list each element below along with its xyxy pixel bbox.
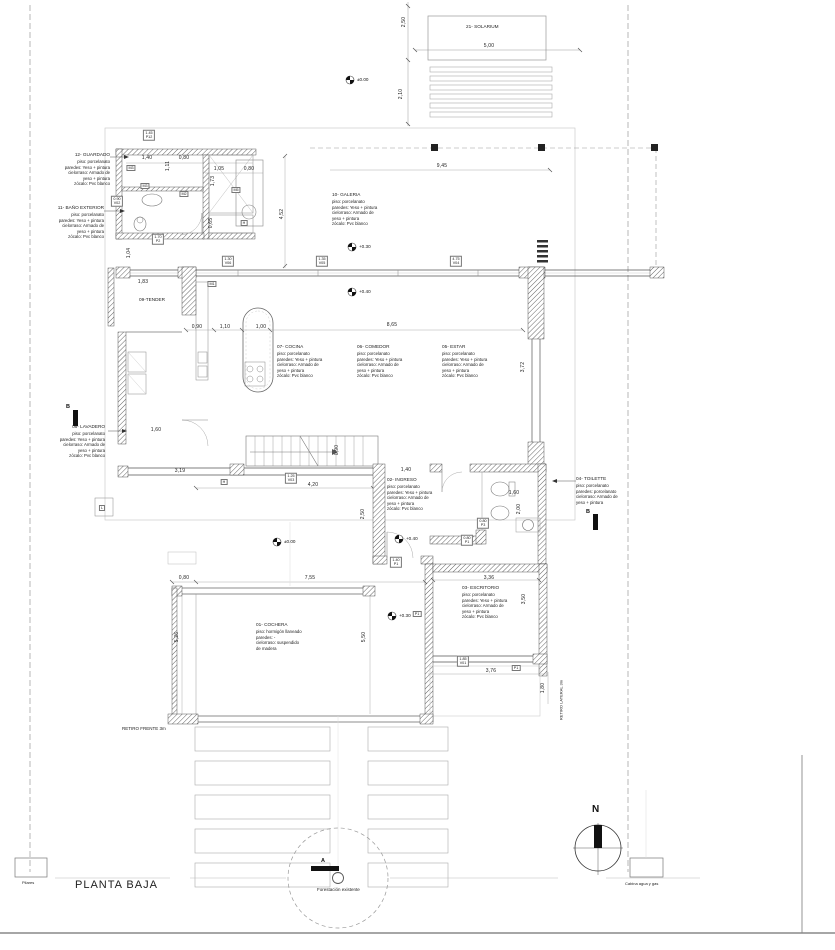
room-specs: piso: porcelanato paredes: Yeso + pintur… — [387, 484, 432, 512]
room-name: 02- INGRESO — [387, 477, 432, 483]
room-name: 12- GUARDADO — [40, 152, 110, 158]
window-door-tag: 1.40P1 — [390, 557, 402, 568]
room-name: 08- LAVADERO — [33, 424, 105, 430]
room-name: 01- COCHERA — [256, 622, 302, 628]
room-name: 06- COMEDOR — [357, 344, 402, 350]
window-door-tag: 0.80P1 — [461, 535, 473, 546]
dimension-label: 3,72 — [520, 362, 526, 373]
dimension-label: 0,80 — [179, 575, 190, 581]
dimension-label: 2,50 — [360, 509, 366, 520]
dimension-label: 4,52 — [279, 209, 285, 220]
dimension-label: 1,40 — [142, 155, 153, 161]
room-label: 04- TOILETTEpiso: porcelanato paredes: p… — [576, 476, 618, 505]
window-door-tag: 4.75V04 — [450, 256, 462, 267]
room-name: 10- GALERIA — [332, 192, 377, 198]
room-label: 03- ESCRITORIOpiso: porcelanato paredes:… — [462, 585, 507, 620]
dimension-label: 0,80 — [244, 166, 255, 172]
dimension-label: 1,60 — [509, 490, 520, 496]
retiro-lateral-note: RETIRO LATERAL 3m — [559, 680, 564, 720]
room-name: 04- TOILETTE — [576, 476, 618, 482]
dimension-label: 1,83 — [138, 279, 149, 285]
dimension-label: 4,20 — [308, 482, 319, 488]
dimension-label: 3,19 — [175, 468, 186, 474]
window-door-tag: 1.25V03 — [285, 473, 297, 484]
room-specs: piso: porcelanato paredes: Yeso + pintur… — [30, 212, 104, 240]
pilares-note: Pilares — [22, 880, 34, 885]
wall-tag: M2 — [179, 191, 188, 197]
dimension-label: 8,65 — [387, 322, 398, 328]
wall-tag: M5 — [231, 187, 240, 193]
wall-tag: M1 — [207, 281, 216, 287]
dimension-label: 2,00 — [516, 504, 522, 515]
tag-code: V05 — [318, 261, 325, 265]
room-label: 09-TENDER — [139, 297, 165, 304]
wall-tag: H — [241, 220, 248, 226]
room-specs: piso: porcelanato paredes: Yeso + pintur… — [40, 159, 110, 187]
section-marker-label: B — [66, 404, 70, 410]
level-marker-label: +0.40 — [406, 536, 418, 541]
room-name: 03- ESCRITORIO — [462, 585, 507, 591]
dimension-label: 5,50 — [361, 632, 367, 643]
wall-tag: M3 — [126, 165, 135, 171]
forestacion-note: Forestación existente — [317, 887, 360, 892]
dimension-label: 3,36 — [484, 575, 495, 581]
dimension-label: 0,65 — [208, 218, 214, 229]
room-specs: piso: hormigón llaneado paredes: - cielo… — [256, 629, 302, 651]
dimension-label: 1,05 — [214, 166, 225, 172]
tag-code: P12 — [145, 135, 152, 139]
level-marker-label: ±0.00 — [357, 77, 368, 82]
room-label: 10- GALERIApiso: porcelanato paredes: Ye… — [332, 192, 377, 227]
wall-tag: M3 — [140, 183, 149, 189]
dimension-label: 1,10 — [220, 324, 231, 330]
tag-code: P3 — [479, 523, 486, 527]
tag-code: V02 — [113, 201, 120, 205]
tag-code: V01 — [459, 661, 466, 665]
wall-tag: P1 — [413, 611, 422, 617]
page-title: PLANTA BAJA — [75, 879, 158, 891]
wall-tag: H — [221, 479, 228, 485]
window-door-tag: 0.80P3 — [477, 518, 489, 529]
tag-code: V03 — [287, 478, 294, 482]
dimension-label: 3,76 — [486, 668, 497, 674]
room-label: 06- COMEDORpiso: porcelanato paredes: Ye… — [357, 344, 402, 379]
window-door-tag: 1.30V06 — [222, 256, 234, 267]
dimension-label: 1,73 — [210, 176, 216, 187]
dimension-label: 1,60 — [151, 427, 162, 433]
tag-code: P1 — [392, 562, 399, 566]
window-door-tag: 1.45P12 — [143, 130, 155, 141]
dimension-label: 9,45 — [437, 163, 448, 169]
level-marker-label: ±0.00 — [284, 539, 295, 544]
tag-code: V06 — [224, 261, 231, 265]
dimension-label: 2,50 — [401, 17, 407, 28]
room-name: 07- COCINA — [277, 344, 322, 350]
room-specs: piso: porcelanato paredes: porcelanato c… — [576, 483, 618, 505]
dimension-label: 5,26 — [174, 632, 180, 643]
window-door-tag: 1.35V05 — [316, 256, 328, 267]
room-label: 21- SOLARIUM — [466, 24, 499, 31]
wall-tag: P1 — [512, 665, 521, 671]
room-name: 21- SOLARIUM — [466, 24, 499, 30]
tag-code: P1 — [463, 540, 470, 544]
dimension-label: 7,55 — [305, 575, 316, 581]
level-marker-label: +0.30 — [359, 244, 371, 249]
tag-code: V04 — [452, 261, 459, 265]
room-specs: piso: porcelanato paredes: Yeso + pintur… — [33, 431, 105, 459]
room-label: 05- ESTARpiso: porcelanato paredes: Yeso… — [442, 344, 487, 379]
room-specs: piso: porcelanato paredes: Yeso + pintur… — [357, 351, 402, 379]
tag-code: P2 — [154, 239, 161, 243]
room-name: 09-TENDER — [139, 297, 165, 303]
room-specs: piso: porcelanato paredes: Yeso + pintur… — [442, 351, 487, 379]
dimension-label: 0,80 — [179, 155, 190, 161]
dimension-label: 0,90 — [334, 445, 340, 456]
label-layer: PLANTA BAJA N RETIRO FRENTE 3m RETIRO LA… — [0, 0, 835, 950]
section-marker-label: A — [321, 858, 325, 864]
room-specs: piso: porcelanato paredes: Yeso + pintur… — [277, 351, 322, 379]
level-marker-label: +0.30 — [399, 613, 411, 618]
dimension-label: 1,11 — [165, 161, 171, 171]
north-label: N — [592, 804, 599, 815]
room-label: 02- INGRESOpiso: porcelanato paredes: Ye… — [387, 477, 432, 512]
dimension-label: 1,80 — [540, 683, 546, 694]
section-marker-label: B — [586, 509, 590, 515]
room-label: 08- LAVADEROpiso: porcelanato paredes: Y… — [33, 424, 105, 459]
dimension-label: 1,00 — [256, 324, 267, 330]
room-label: 07- COCINApiso: porcelanato paredes: Yes… — [277, 344, 322, 379]
dimension-label: 2,10 — [398, 89, 404, 100]
dimension-label: 0,90 — [192, 324, 203, 330]
room-name: 11- BAÑO EXTERIOR — [30, 205, 104, 211]
dimension-label: 3,50 — [521, 594, 527, 605]
dimension-label: 1,04 — [126, 248, 132, 259]
dimension-label: 5,00 — [484, 43, 495, 49]
floor-plan-page: PLANTA BAJA N RETIRO FRENTE 3m RETIRO LA… — [0, 0, 835, 950]
cabina-note: Cabina agua y gas — [625, 881, 658, 886]
room-specs: piso: porcelanato paredes: Yeso + pintur… — [462, 592, 507, 620]
level-marker-label: +0.40 — [359, 289, 371, 294]
room-label: 12- GUARDADOpiso: porcelanato paredes: Y… — [40, 152, 110, 187]
window-door-tag: 0.90V02 — [111, 196, 123, 207]
room-label: 11- BAÑO EXTERIORpiso: porcelanato pared… — [30, 205, 104, 240]
retiro-frente-note: RETIRO FRENTE 3m — [122, 726, 166, 731]
window-door-tag: 1.85V01 — [457, 656, 469, 667]
wall-tag: L — [99, 505, 105, 511]
room-name: 05- ESTAR — [442, 344, 487, 350]
dimension-label: 1,40 — [401, 467, 412, 473]
room-label: 01- COCHERApiso: hormigón llaneado pared… — [256, 622, 302, 651]
window-door-tag: 1.70P2 — [152, 234, 164, 245]
room-specs: piso: porcelanato paredes: Yeso + pintur… — [332, 199, 377, 227]
